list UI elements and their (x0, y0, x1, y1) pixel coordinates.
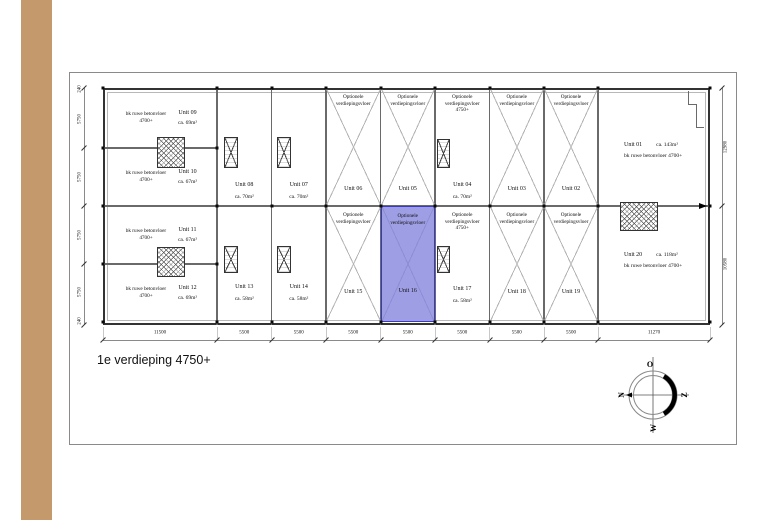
dim-label-bottom: 5500 (512, 331, 522, 336)
unit-cell-18[interactable]: Optionele verdiepingsvloerUnit 18 (490, 206, 545, 322)
left-tan-stripe (21, 0, 52, 520)
unit-name-label: Unit 06 (344, 186, 362, 193)
optional-floor-note: Optionele verdiepingsvloer (544, 88, 598, 107)
column-marker (379, 205, 382, 208)
column-marker (488, 321, 491, 324)
column-marker (102, 87, 105, 90)
column-marker (379, 321, 382, 324)
unit-name-label: Unit 02 (562, 186, 580, 193)
unit-floor-label: bk ruwe betonvloer 4700+ (598, 263, 682, 269)
column-marker (434, 87, 437, 90)
column-marker (379, 87, 382, 90)
column-marker (216, 87, 219, 90)
unit-name-label: Unit 05 (399, 186, 417, 193)
unit-name-label: Unit 18 (508, 289, 526, 296)
dim-label-right: 10580 (724, 258, 729, 271)
column-marker (216, 147, 219, 150)
staircase-icon (224, 137, 238, 168)
elevator-icon (620, 202, 658, 231)
dimension-extension-line (489, 327, 490, 339)
staircase-icon (437, 139, 450, 168)
unit-area-label: ca. 58m² (453, 298, 472, 305)
dim-label-bottom: 5500 (566, 331, 576, 336)
unit-floor-label: bk ruwe betonvloer 4700+ (123, 170, 169, 184)
optional-floor-note: Optionele verdiepingsvloer (381, 88, 436, 107)
unit-cell-01[interactable]: Unit 01ca. 143m² bk ruwe betonvloer 4700… (598, 88, 710, 206)
column-marker (102, 321, 105, 324)
unit-area-label: ca. 67m² (178, 179, 197, 186)
dimension-line-bottom (103, 340, 710, 341)
unit-area-label: ca. 58m² (289, 296, 308, 303)
column-marker (709, 87, 712, 90)
unit-name-label: Unit 08 (235, 182, 253, 189)
compass-label-north: N (617, 392, 626, 398)
dim-label-bottom: 5500 (294, 331, 304, 336)
optional-floor-note: Optionele verdiepingsvloer (544, 206, 598, 225)
column-marker (597, 321, 600, 324)
column-marker (434, 205, 437, 208)
dim-label-bottom: 11270 (648, 331, 660, 336)
column-marker (216, 205, 219, 208)
unit-name-label: Unit 16 (399, 288, 417, 295)
compass-label-south: Z (680, 392, 689, 397)
column-marker (102, 147, 105, 150)
optional-floor-note: Optionele verdiepingsvloer 4750+ (435, 88, 490, 114)
unit-name-label: Unit 10 (178, 169, 197, 176)
unit-name-label: Unit 12 (178, 285, 197, 292)
unit-floor-label: bk ruwe betonvloer 4700+ (123, 228, 169, 242)
unit-cell-06[interactable]: Optionele verdiepingsvloerUnit 06 (326, 88, 381, 206)
column-marker (488, 205, 491, 208)
column-marker (325, 321, 328, 324)
compass-label-west: W (649, 424, 658, 432)
column-marker (270, 321, 273, 324)
unit-name-label: Unit 04 (453, 182, 471, 189)
compass-rose: O Z W N (614, 354, 694, 438)
screenshot-root: bk ruwe betonvloer 4700+ Unit 09ca. 69m²… (0, 0, 780, 520)
dimension-extension-line (380, 327, 381, 339)
column-marker (270, 205, 273, 208)
column-marker (216, 263, 219, 266)
column-marker (488, 87, 491, 90)
unit-name-label: Unit 19 (562, 289, 580, 296)
unit-name-label: Unit 09 (178, 110, 197, 117)
unit-area-label: ca. 143m² (656, 142, 678, 149)
unit-floor-label: bk ruwe betonvloer 4700+ (598, 153, 682, 159)
elevator-icon (157, 137, 185, 168)
unit-cell-05[interactable]: Optionele verdiepingsvloerUnit 05 (381, 88, 436, 206)
unit-area-label: ca. 69m² (178, 120, 197, 127)
unit-name-label: Unit 15 (344, 289, 362, 296)
dimension-extension-line (271, 327, 272, 339)
unit-cell-15[interactable]: Optionele verdiepingsvloerUnit 15 (326, 206, 381, 322)
staircase-icon (277, 246, 291, 273)
column-marker (270, 87, 273, 90)
dim-label-left: 5750 (78, 114, 83, 124)
unit-name-label: Unit 13 (235, 284, 253, 291)
unit-area-label: ca. 69m² (178, 295, 197, 302)
column-marker (709, 321, 712, 324)
column-marker (216, 321, 219, 324)
dim-label-right: 12980 (724, 141, 729, 154)
column-marker (597, 87, 600, 90)
unit-cell-02[interactable]: Optionele verdiepingsvloerUnit 02 (544, 88, 598, 206)
unit-area-label: ca. 70m² (235, 194, 254, 201)
dim-label-left: 240 (78, 85, 83, 93)
dim-label-bottom: 5500 (239, 331, 249, 336)
column-marker (434, 321, 437, 324)
dim-label-left: 240 (78, 317, 83, 325)
unit-name-label: Unit 17 (453, 286, 471, 293)
column-marker (325, 205, 328, 208)
unit-cell-16[interactable]: Optionele verdiepingsvloerUnit 16 (381, 206, 436, 322)
optional-floor-note: Optionele verdiepingsvloer (326, 88, 381, 107)
dim-label-left: 5750 (78, 230, 83, 240)
unit-area-label: ca. 118m² (656, 252, 678, 259)
compass-label-east: O (647, 360, 653, 369)
optional-floor-note: Optionele verdiepingsvloer (490, 206, 545, 225)
unit-name-label: Unit 20 (624, 252, 642, 259)
column-marker (102, 205, 105, 208)
unit-area-label: ca. 58m² (235, 296, 254, 303)
unit-area-label: ca. 67m² (178, 237, 197, 244)
unit-cell-03[interactable]: Optionele verdiepingsvloerUnit 03 (490, 88, 545, 206)
dim-label-bottom: 5500 (457, 331, 467, 336)
dim-label-left: 5750 (78, 172, 83, 182)
dim-label-bottom: 5500 (403, 331, 413, 336)
unit-name-label: Unit 14 (290, 284, 308, 291)
unit-name-label: Unit 01 (624, 142, 642, 149)
unit-area-label: ca. 70m² (289, 194, 308, 201)
unit-name-label: Unit 07 (290, 182, 308, 189)
column-marker (102, 263, 105, 266)
optional-floor-note: Optionele verdiepingsvloer 4750+ (435, 206, 490, 232)
column-marker (543, 321, 546, 324)
column-marker (543, 205, 546, 208)
staircase-icon (437, 246, 450, 273)
mid-line-arrow-icon (699, 203, 707, 209)
column-marker (325, 87, 328, 90)
column-marker (543, 87, 546, 90)
unit-floor-label: bk ruwe betonvloer 4700+ (123, 111, 169, 125)
unit-name-label: Unit 03 (508, 186, 526, 193)
staircase-icon (277, 137, 291, 168)
dim-label-left: 5750 (78, 287, 83, 297)
column-marker (709, 205, 712, 208)
column-marker (597, 205, 600, 208)
unit-cell-19[interactable]: Optionele verdiepingsvloerUnit 19 (544, 206, 598, 322)
staircase-icon (224, 246, 238, 273)
elevator-icon (157, 247, 185, 277)
dim-label-bottom: 5500 (348, 331, 358, 336)
unit-floor-label: bk ruwe betonvloer 4700+ (123, 286, 169, 300)
optional-floor-note: Optionele verdiepingsvloer (490, 88, 545, 107)
drawing-title: 1e verdieping 4750+ (97, 353, 211, 367)
unit-area-label: ca. 70m² (453, 194, 472, 201)
optional-floor-note: Optionele verdiepingsvloer (382, 207, 435, 226)
optional-floor-note: Optionele verdiepingsvloer (326, 206, 381, 225)
dim-label-bottom: 11500 (154, 331, 166, 336)
unit-name-label: Unit 11 (178, 227, 197, 234)
